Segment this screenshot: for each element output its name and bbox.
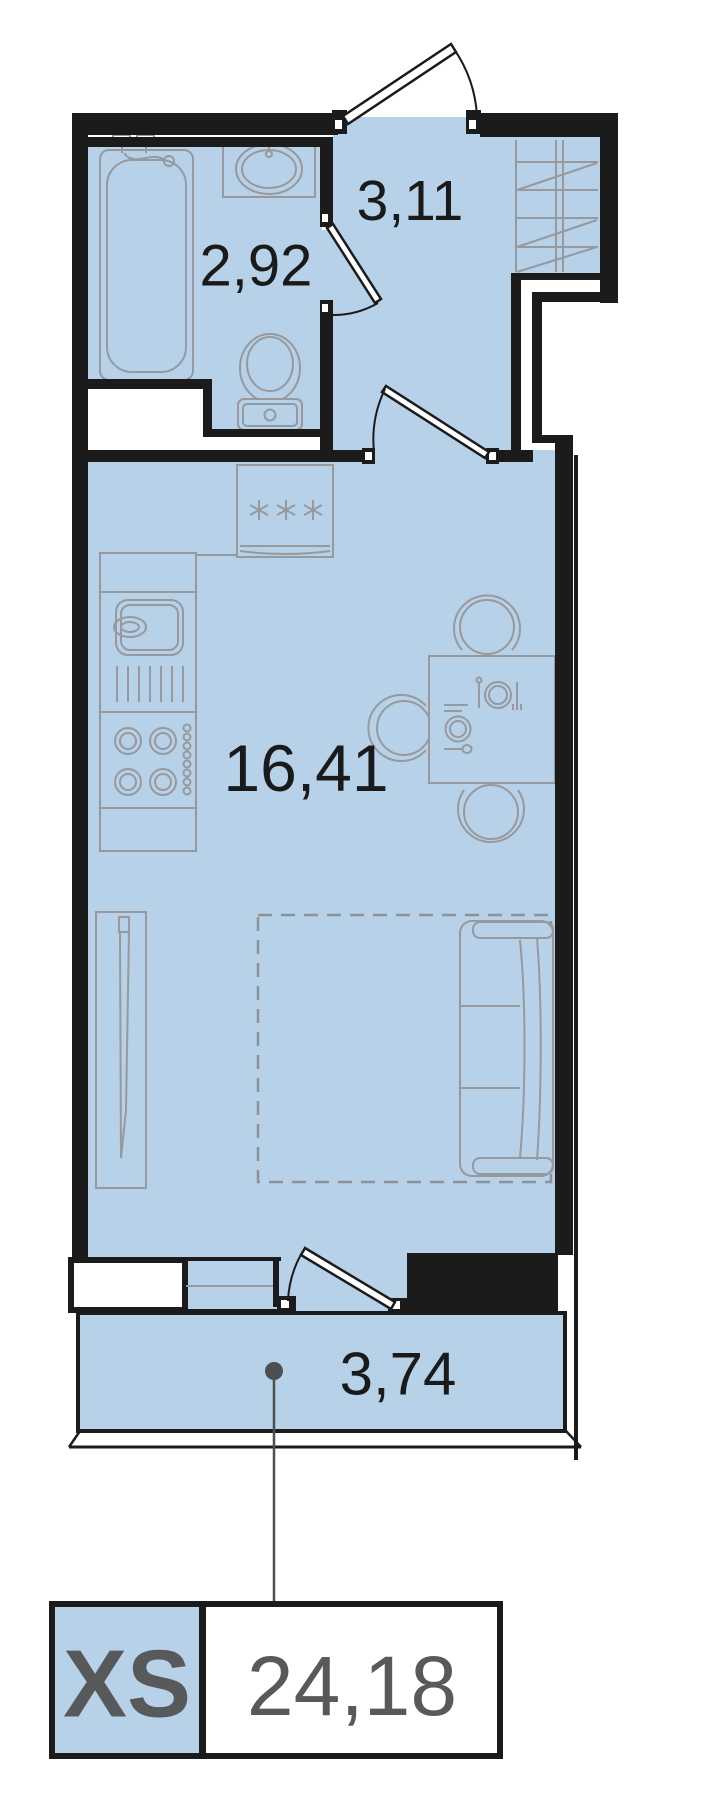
sofa-icon: [460, 921, 553, 1176]
fridge-icon: [237, 465, 333, 557]
balcony-area-label: 3,74: [340, 1341, 457, 1408]
entry-door-opening: [345, 117, 468, 137]
badge-area-value: 24,18: [247, 1639, 457, 1733]
wall-bay: [71, 1260, 185, 1310]
floor-plan-page: 2,92 3,11 16,41 3,74 XS 24,18: [0, 0, 712, 1801]
room-balcony: [78, 1313, 565, 1431]
dining-table-icon: [429, 656, 555, 783]
bathroom-door-opening: [318, 230, 334, 310]
floor-plan-svg: 2,92 3,11 16,41 3,74 XS 24,18: [0, 0, 712, 1801]
callout-dot: [265, 1362, 283, 1380]
badge-divider: [199, 1604, 206, 1756]
entry-door-icon: [343, 44, 477, 124]
living-kitchen-area-label: 16,41: [223, 731, 388, 805]
badge-type-label: XS: [63, 1631, 191, 1738]
hallway-area-label: 3,11: [357, 169, 464, 233]
bathroom-area-label: 2,92: [200, 234, 313, 299]
plan-type-badge: XS 24,18: [52, 1604, 500, 1756]
room-living-kitchen: [88, 450, 555, 1313]
